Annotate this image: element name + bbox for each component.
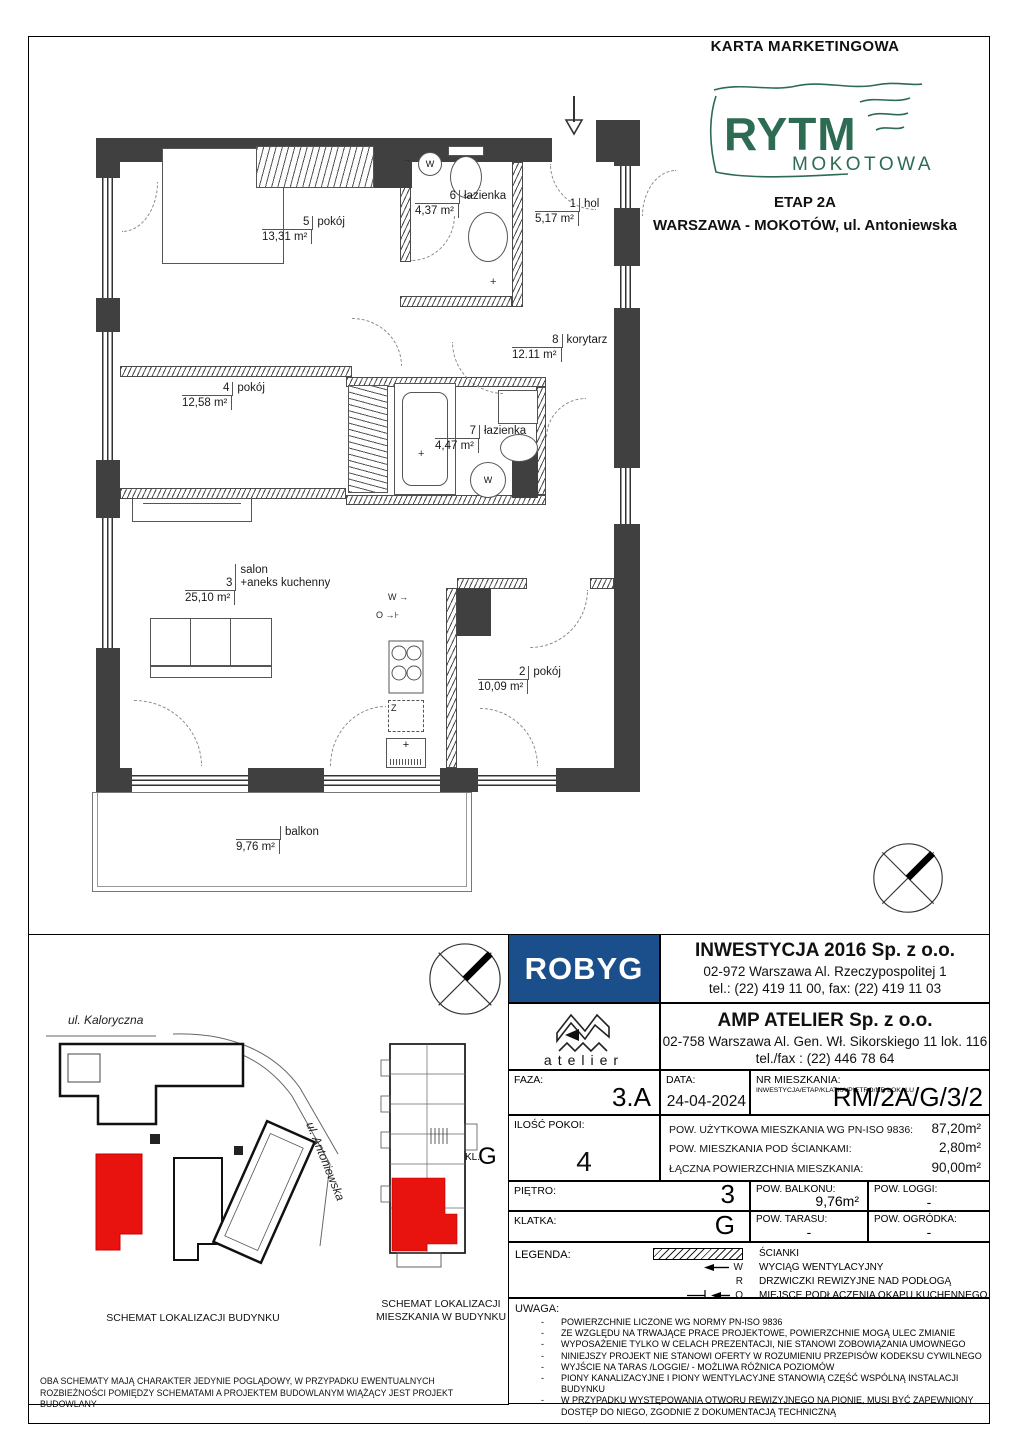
room-label: 7łazienka 4,47 m² xyxy=(435,425,529,453)
uwaga-text: ZE WZGLĘDU NA TRWAJĄCE PRACE PROJEKTOWE,… xyxy=(561,1328,955,1338)
uwaga-text: W PRZYPADKU WYSTĘPOWANIA OTWORU REWIZYJN… xyxy=(561,1395,973,1416)
wall-segment xyxy=(614,208,640,266)
uwaga-item: -W PRZYPADKU WYSTĘPOWANIA OTWORU REWIZYJ… xyxy=(515,1395,983,1417)
furniture-tv-stand xyxy=(132,498,252,522)
compass-icon xyxy=(870,840,946,916)
room-area: 10,09 m² xyxy=(478,680,528,694)
kitchen-fridge: Z xyxy=(388,700,424,732)
klatka-label: KLATKA: xyxy=(514,1215,556,1227)
window xyxy=(102,332,114,460)
room-name: pokój xyxy=(232,382,268,396)
shaft xyxy=(374,146,412,188)
vent-letter: W xyxy=(388,592,397,602)
kitchen-stove xyxy=(388,640,424,694)
legend-text: DRZWICZKI REWIZYJNE NAD PODŁOGĄ xyxy=(759,1276,951,1287)
caption-building-schematic: SCHEMAT LOKALIZACJI BUDYNKU xyxy=(48,1312,338,1324)
rooms-count-cell: ILOŚĆ POKOI: 4 xyxy=(508,1115,660,1181)
bullet-dash: - xyxy=(541,1395,544,1406)
shaft xyxy=(457,588,491,636)
room-number: 7 xyxy=(435,425,479,439)
window xyxy=(132,774,248,786)
window xyxy=(102,178,114,298)
area-value: 87,20m² xyxy=(931,1121,981,1136)
developer-info: INWESTYCJA 2016 Sp. z o.o. 02-972 Warsza… xyxy=(660,934,990,1003)
bullet-dash: - xyxy=(541,1351,544,1362)
area-value: 2,80m² xyxy=(939,1140,981,1155)
room-name: hol xyxy=(579,198,602,212)
room-label: 1hol 5,17 m² xyxy=(535,198,602,226)
bullet-dash: - xyxy=(541,1362,544,1373)
taras-cell: POW. TARASU: - xyxy=(750,1211,868,1242)
wall-segment xyxy=(556,768,640,792)
room-number: 6 xyxy=(415,190,459,204)
room-name: balkon xyxy=(280,826,322,840)
drain-mark: + xyxy=(490,276,496,288)
ogrodek-value: - xyxy=(869,1224,989,1240)
legend-text: ŚCIANKI xyxy=(759,1248,799,1259)
highlighted-building xyxy=(96,1154,142,1250)
hood-symbol: O →⊦ xyxy=(376,610,399,621)
uwaga-label: UWAGA: xyxy=(515,1303,983,1315)
room-number: 5 xyxy=(262,216,312,230)
arrow-icon: → xyxy=(399,592,408,602)
room-area: 12.11 m² xyxy=(512,348,562,362)
developer-phones: tel.: (22) 419 11 00, fax: (22) 419 11 0… xyxy=(661,981,989,996)
nr-value: RM/2A/G/3/2 xyxy=(833,1082,983,1113)
room-label: 8korytarz 12.11 m² xyxy=(512,334,610,362)
area-row: POW. MIESZKANIA POD ŚCIANKAMI: 2,80m² xyxy=(669,1140,981,1155)
logo-subword: MOKOTOWA xyxy=(792,154,932,175)
area-row: POW. UŻYTKOWA MIESZKANIA WG PN-ISO 9836:… xyxy=(669,1121,981,1136)
area-row: ŁĄCZNA POWIERZCHNIA MIESZKANIA: 90,00m² xyxy=(669,1160,981,1175)
window xyxy=(620,266,632,308)
room-label: 5pokój 13,31 m² xyxy=(262,216,348,244)
furniture-sofa xyxy=(150,666,272,678)
uwaga-item: -PIONY KANALIZACYJNE I PIONY WENTYLACYJN… xyxy=(515,1373,983,1395)
architect-company: AMP ATELIER Sp. z o.o. xyxy=(661,1010,989,1032)
partition-wall xyxy=(512,162,523,307)
uwaga-item: -POWIERZCHNIE LICZONE WG NORMY PN-ISO 98… xyxy=(515,1317,983,1328)
room-number: 1 xyxy=(535,198,579,212)
area-value: 90,00m² xyxy=(931,1160,981,1175)
window xyxy=(324,774,440,786)
legend-text: WYCIĄG WENTYLACYJNY xyxy=(759,1262,883,1273)
fridge-letter: Z xyxy=(391,703,397,713)
kitchen-oven: + xyxy=(386,738,426,768)
fixture-washbasin xyxy=(498,390,538,424)
room-number xyxy=(236,826,280,840)
faza-cell: FAZA: 3.A xyxy=(508,1070,660,1115)
furniture-wardrobe xyxy=(256,146,374,188)
wall-segment xyxy=(440,768,478,792)
wall-segment xyxy=(96,460,120,518)
data-cell: DATA: 24-04-2024 xyxy=(660,1070,750,1115)
wall-segment xyxy=(614,524,640,792)
pietro-cell: PIĘTRO: 3 xyxy=(508,1181,750,1211)
uwaga-item: -NINIEJSZY PROJEKT NIE STANOWI OFERTY W … xyxy=(515,1351,983,1362)
room-number: 8 xyxy=(512,334,562,348)
ogrodek-cell: POW. OGRÓDKA: - xyxy=(868,1211,990,1242)
bullet-dash: - xyxy=(541,1328,544,1339)
faza-label: FAZA: xyxy=(514,1074,543,1086)
wall-segment xyxy=(96,138,120,178)
vent-arrow-icon xyxy=(704,1263,730,1272)
bullet-dash: - xyxy=(541,1317,544,1328)
room-area: 4,37 m² xyxy=(415,204,459,218)
area-label: POW. MIESZKANIA POD ŚCIANKAMI: xyxy=(669,1143,852,1155)
room-number: 3 xyxy=(185,577,235,591)
revision-letter: R xyxy=(736,1276,743,1287)
nr-label: NR MIESZKANIA: xyxy=(756,1074,841,1086)
room-area: 25,10 m² xyxy=(185,591,235,605)
window xyxy=(478,774,556,786)
entrance-arrow-icon xyxy=(558,94,590,136)
atelier-emblem-icon xyxy=(551,1007,615,1053)
rooms-label: ILOŚĆ POKOI: xyxy=(514,1119,585,1131)
atelier-logo: atelier xyxy=(508,1003,660,1070)
uwaga-text: WYPOSAŻENIE TYLKO W CELACH PREZENTACJI, … xyxy=(561,1339,966,1349)
site-plan: ul. Kaloryczna ul. Antoniewska xyxy=(38,996,350,1308)
vent-letter: W xyxy=(484,475,493,485)
uwaga-item: -WYJŚCIE NA TARAS /LOGGIE/ - MOŻLIWA RÓŻ… xyxy=(515,1362,983,1373)
architect-info: AMP ATELIER Sp. z o.o. 02-758 Warszawa A… xyxy=(660,1003,990,1070)
uwaga-text: WYJŚCIE NA TARAS /LOGGIE/ - MOŻLIWA RÓŻN… xyxy=(561,1362,834,1372)
balkon-cell: POW. BALKONU: 9,76m² xyxy=(750,1181,868,1211)
wall-segment xyxy=(248,768,324,792)
partition-wall xyxy=(446,588,457,768)
room-number: 4 xyxy=(182,382,232,396)
loggi-cell: POW. LOGGI: - xyxy=(868,1181,990,1211)
robyg-wordmark: ROBYG xyxy=(525,951,644,987)
vent-letter: W xyxy=(426,159,435,169)
drain-mark: + xyxy=(418,448,424,460)
klatka-value: G xyxy=(715,1210,735,1241)
hood-letter: O xyxy=(376,610,383,620)
pietro-value: 3 xyxy=(721,1179,735,1210)
uwaga-text: NINIEJSZY PROJEKT NIE STANOWI OFERTY W R… xyxy=(561,1351,982,1361)
caption-flat-schematic: SCHEMAT LOKALIZACJI MIESZKANIA W BUDYNKU xyxy=(366,1298,516,1324)
wall-segment xyxy=(614,308,640,468)
rooms-value: 4 xyxy=(509,1146,659,1178)
room-name: +aneks kuchenny xyxy=(235,577,333,591)
furniture-wardrobe xyxy=(348,385,388,493)
legend-row: ŚCIANKI xyxy=(599,1247,989,1260)
uwaga-text: POWIERZCHNIE LICZONE WG NORMY PN-ISO 983… xyxy=(561,1317,782,1327)
wall-segment xyxy=(96,298,120,332)
taras-value: - xyxy=(751,1224,867,1240)
partition-wall xyxy=(120,366,352,377)
marketing-card-page: KARTA MARKETINGOWA RYTM MOKOTOWA ETAP 2A… xyxy=(0,0,1018,1440)
area-label: ŁĄCZNA POWIERZCHNIA MIESZKANIA: xyxy=(669,1163,863,1175)
room-name: łazienka xyxy=(479,425,529,439)
window xyxy=(620,166,632,208)
bullet-dash: - xyxy=(541,1339,544,1350)
window xyxy=(620,468,632,524)
partition-wall xyxy=(590,578,614,589)
vent-letter: W xyxy=(734,1262,743,1273)
developer-address: 02-972 Warszawa Al. Rzeczypospolitej 1 xyxy=(661,964,989,979)
vent-symbol: W xyxy=(418,152,442,176)
vent-symbol: W → xyxy=(388,592,408,602)
legend-cell: LEGENDA: ŚCIANKI W WYCIĄG WENTYLACYJNY R… xyxy=(508,1242,990,1298)
logo-wordmark: RYTM xyxy=(724,108,857,160)
compass-icon xyxy=(426,940,504,1018)
architect-phones: tel./fax : (22) 446 78 64 xyxy=(661,1051,989,1066)
room-area: 5,17 m² xyxy=(535,212,579,226)
data-value: 24-04-2024 xyxy=(667,1093,746,1111)
staircase-letter: G xyxy=(478,1143,497,1170)
furniture-table xyxy=(150,618,272,666)
areas-cell: POW. UŻYTKOWA MIESZKANIA WG PN-ISO 9836:… xyxy=(660,1115,990,1181)
developer-company: INWESTYCJA 2016 Sp. z o.o. xyxy=(661,940,989,962)
street-label: ul. Kaloryczna xyxy=(68,1013,144,1027)
room-number: 2 xyxy=(478,666,528,680)
data-label: DATA: xyxy=(666,1074,695,1086)
fixture-washbasin xyxy=(468,212,508,262)
schematics-disclaimer: OBA SCHEMATY MAJĄ CHARAKTER JEDYNIE POGL… xyxy=(40,1376,502,1411)
klatka-cell: KLATKA: G xyxy=(508,1211,750,1242)
room-area: 13,31 m² xyxy=(262,230,312,244)
washing-machine: W xyxy=(470,462,506,498)
room-area: 12,58 m² xyxy=(182,396,232,410)
atelier-wordmark: atelier xyxy=(509,1052,659,1068)
area-label: POW. UŻYTKOWA MIESZKANIA WG PN-ISO 9836: xyxy=(669,1124,913,1136)
room-label: 6łazienka 4,37 m² xyxy=(415,190,509,218)
partition-wall xyxy=(400,296,512,307)
legend-row: W WYCIĄG WENTYLACYJNY xyxy=(599,1261,989,1274)
nr-mieszkania-cell: NR MIESZKANIA: INWESTYCJA/ETAP/KLATKA/PI… xyxy=(750,1070,990,1115)
room-area: 4,47 m² xyxy=(435,439,479,453)
faza-value: 3.A xyxy=(612,1082,651,1113)
pietro-label: PIĘTRO: xyxy=(514,1185,556,1197)
room-label: 4pokój 12,58 m² xyxy=(182,382,268,410)
room-name: salon xyxy=(235,564,333,577)
bullet-dash: - xyxy=(541,1373,544,1384)
arrow-icon: → xyxy=(402,154,411,164)
room-name: korytarz xyxy=(562,334,611,348)
uwaga-item: -ZE WZGLĘDU NA TRWAJĄCE PRACE PROJEKTOWE… xyxy=(515,1328,983,1339)
location-label: WARSZAWA - MOKOTÓW, ul. Antoniewska xyxy=(620,217,990,234)
room-name: pokój xyxy=(528,666,564,680)
room-area: 9,76 m² xyxy=(236,840,280,854)
legend-label: LEGENDA: xyxy=(515,1249,571,1261)
document-title: KARTA MARKETINGOWA xyxy=(620,38,990,55)
wall-segment xyxy=(596,120,640,162)
fixture-cistern xyxy=(448,146,484,156)
room-label-salon: salon 3+aneks kuchenny 25,10 m² xyxy=(185,564,333,605)
walls-hatch-icon xyxy=(653,1248,743,1260)
balkon-value: 9,76m² xyxy=(815,1193,859,1209)
loggi-value: - xyxy=(869,1194,989,1210)
building-schematic: KL. G xyxy=(365,1038,500,1300)
uwaga-cell: UWAGA: -POWIERZCHNIE LICZONE WG NORMY PN… xyxy=(508,1298,990,1404)
room-name: łazienka xyxy=(459,190,509,204)
robyg-logo: ROBYG xyxy=(508,934,660,1003)
uwaga-text: PIONY KANALIZACYJNE I PIONY WENTYLACYJNE… xyxy=(561,1373,958,1394)
legend-row: R DRZWICZKI REWIZYJNE NAD PODŁOGĄ xyxy=(599,1275,989,1288)
wall-segment xyxy=(96,768,132,792)
uwaga-item: -WYPOSAŻENIE TYLKO W CELACH PREZENTACJI,… xyxy=(515,1339,983,1350)
architect-address: 02-758 Warszawa Al. Gen. Wł. Sikorskiego… xyxy=(661,1034,989,1049)
room-label-balcony: balkon 9,76 m² xyxy=(236,826,322,854)
room-name: pokój xyxy=(312,216,348,230)
room-label: 2pokój 10,09 m² xyxy=(478,666,564,694)
rytm-mokotowa-logo: RYTM MOKOTOWA xyxy=(700,76,932,188)
window xyxy=(102,518,114,648)
arrow-icon: →⊦ xyxy=(386,610,400,620)
